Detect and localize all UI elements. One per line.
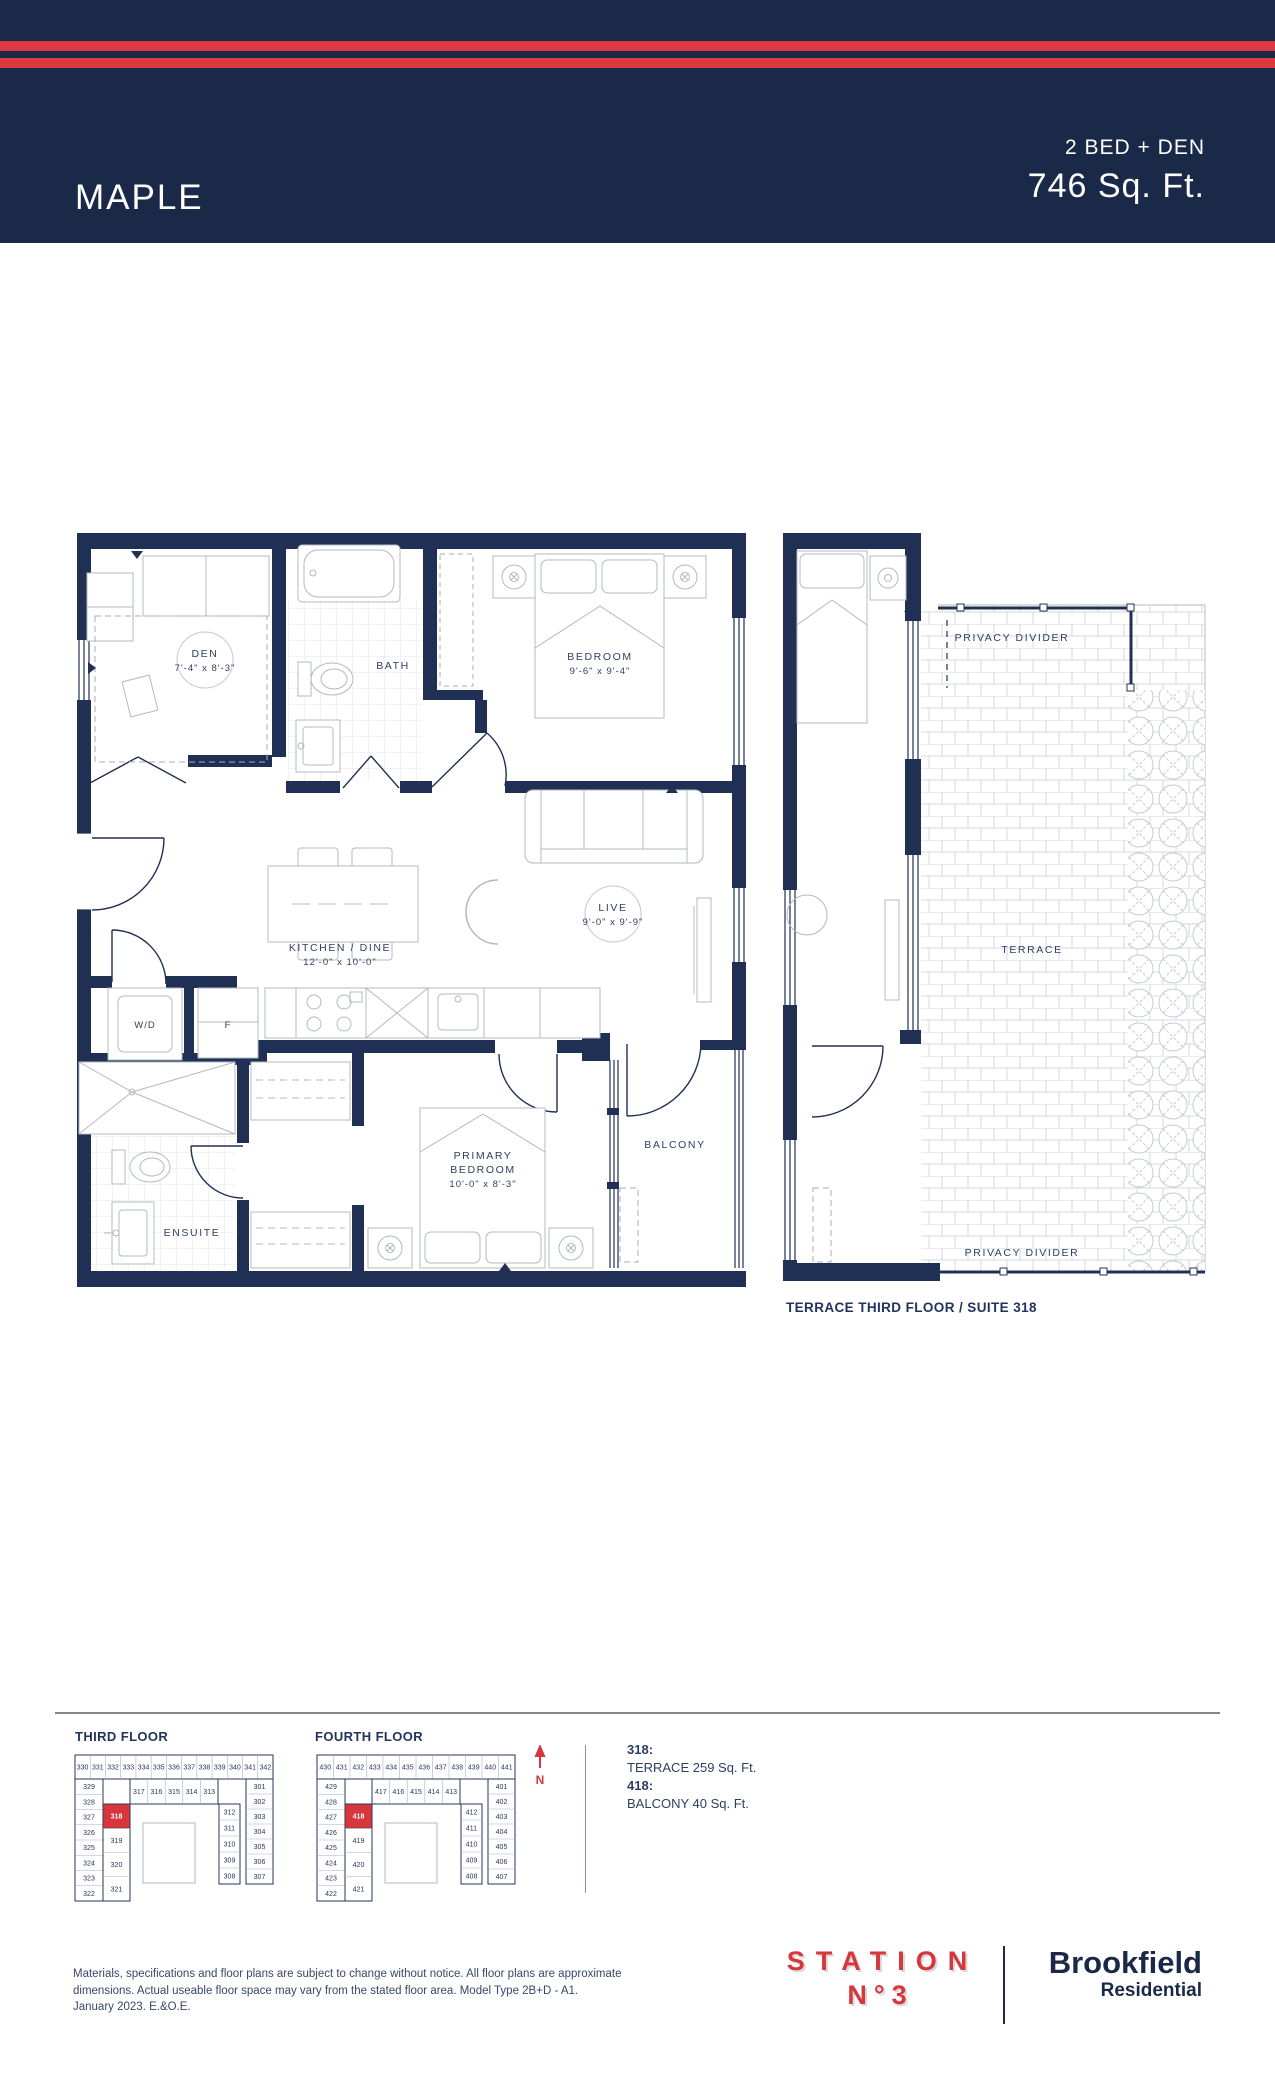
- terrace-plan-svg: PRIVACY DIVIDER TERRACE PRIVACY DIVIDER: [780, 530, 1210, 1290]
- keyplan-unit-label: 325: [83, 1845, 95, 1852]
- plan-type: 2 BED + DEN: [1028, 136, 1205, 160]
- keyplan-unit-label: 321: [111, 1886, 123, 1893]
- keyplan-unit-label: 326: [83, 1830, 95, 1837]
- keyplan-unit-label: 335: [153, 1764, 165, 1771]
- brookfield-logo: Brookfield Residential: [1020, 1947, 1202, 2002]
- terrace-label: TERRACE: [1001, 944, 1062, 956]
- keyplan-unit-label: 430: [319, 1764, 331, 1771]
- primary-dims: 10'-0" x 8'-3": [449, 1179, 516, 1190]
- keyplan-unit-label: 416: [393, 1789, 405, 1796]
- den-dims: 7'-4" x 8'-3": [175, 663, 236, 674]
- keyplan-unit-label: 315: [168, 1789, 180, 1796]
- keyplan-unit-label: 310: [224, 1841, 236, 1848]
- keyplan-unit-label: 441: [501, 1764, 513, 1771]
- keyplan-unit-label: 421: [353, 1886, 365, 1893]
- header-stripe-bottom: [0, 58, 1275, 68]
- plan-summary: 2 BED + DEN 746 Sq. Ft.: [1028, 136, 1205, 206]
- keyplan-unit-label: 404: [496, 1829, 508, 1836]
- keyplan-unit-label: 332: [107, 1764, 119, 1771]
- keyplan-unit-label: 318: [111, 1814, 123, 1821]
- disclaimer-line-3: January 2023. E.&O.E.: [73, 1999, 673, 2016]
- disclaimer-line-1: Materials, specifications and floor plan…: [73, 1966, 673, 1983]
- keyplan-unit-label: 314: [186, 1789, 198, 1796]
- keyplans-svg: N 33033133233333433533633733833934034134…: [55, 1745, 615, 1915]
- legend-item-418-value: BALCONY 40 Sq. Ft.: [627, 1795, 887, 1813]
- keyplan-unit-label: 417: [375, 1789, 387, 1796]
- keyplan-unit-label: 336: [168, 1764, 180, 1771]
- keyplan-unit-label: 312: [224, 1809, 236, 1816]
- keyplan-unit-label: 429: [325, 1784, 337, 1791]
- keyplan-unit-label: 413: [445, 1789, 457, 1796]
- keyplan-unit-label: 428: [325, 1799, 337, 1806]
- keyplan-courtyard: [143, 1823, 195, 1883]
- third-floor-title: THIRD FLOOR: [75, 1729, 168, 1744]
- rail-posts: [607, 1108, 619, 1189]
- live-dims: 9'-0" x 9'-9": [583, 917, 644, 928]
- floorplan-page: MAPLE 2 BED + DEN 746 Sq. Ft.: [0, 0, 1275, 2100]
- terrace-furniture: [787, 551, 906, 1262]
- balcony-label: BALCONY: [644, 1139, 705, 1151]
- keyplan-unit-label: 406: [496, 1859, 508, 1866]
- keyplan-unit-label: 327: [83, 1815, 95, 1822]
- keyplan-unit-label: 419: [353, 1838, 365, 1845]
- plan-area: 746 Sq. Ft.: [1028, 167, 1205, 206]
- ensuite-label: ENSUITE: [164, 1227, 221, 1239]
- keyplan-unit-label: 410: [466, 1841, 478, 1848]
- keyplan-unit-label: 341: [244, 1764, 256, 1771]
- keyplan-unit-label: 439: [468, 1764, 480, 1771]
- fourth-floor-title: FOURTH FLOOR: [315, 1729, 423, 1744]
- header-stripe-top: [0, 41, 1275, 51]
- north-label: N: [536, 1773, 545, 1787]
- keyplan-unit-label: 307: [254, 1874, 266, 1881]
- keyplan-unit-label: 414: [428, 1789, 440, 1796]
- keyplan-unit-label: 422: [325, 1891, 337, 1898]
- den-label: DEN: [192, 648, 219, 660]
- keyplan-unit-label: 408: [466, 1873, 478, 1880]
- station-logo-line2: N°3: [752, 1980, 1002, 2011]
- keyplan-unit-label: 415: [410, 1789, 422, 1796]
- bath-label: BATH: [376, 660, 410, 672]
- keyplan-unit-label: 401: [496, 1784, 508, 1791]
- keyplan-unit-label: 301: [254, 1784, 266, 1791]
- keyplan-unit-label: 324: [83, 1860, 95, 1867]
- keyplan-unit-label: 418: [353, 1814, 365, 1821]
- keyplan-unit-label: 432: [352, 1764, 364, 1771]
- primary-label-2: BEDROOM: [450, 1164, 515, 1176]
- live-label: LIVE: [598, 902, 627, 914]
- keyplan-unit-label: 423: [325, 1876, 337, 1883]
- terrace-caption: TERRACE THIRD FLOOR / SUITE 318: [786, 1300, 1216, 1315]
- keyplan-unit-label: 437: [435, 1764, 447, 1771]
- plan-title: MAPLE: [75, 178, 204, 218]
- brookfield-logo-line1: Brookfield: [1020, 1947, 1202, 1978]
- legend-item-318-value: TERRACE 259 Sq. Ft.: [627, 1759, 887, 1777]
- keyplan-unit-label: 409: [466, 1857, 478, 1864]
- terrace-door: [812, 1046, 883, 1117]
- keyplan-unit-label: 317: [133, 1789, 145, 1796]
- keyplan-unit-label: 431: [336, 1764, 348, 1771]
- keyplan-unit-label: 331: [92, 1764, 104, 1771]
- logo-divider: [1003, 1946, 1005, 2024]
- keyplan-unit-label: 403: [496, 1814, 508, 1821]
- keyplan-unit-label: 303: [254, 1814, 266, 1821]
- legend-divider: [585, 1745, 586, 1893]
- keyplan-unit-label: 306: [254, 1859, 266, 1866]
- keyplan-unit-label: 436: [418, 1764, 430, 1771]
- outdoor-area-legend: 318: TERRACE 259 Sq. Ft. 418: BALCONY 40…: [627, 1741, 887, 1813]
- keyplan-unit-label: 438: [451, 1764, 463, 1771]
- legend-item-418-label: 418:: [627, 1778, 653, 1793]
- keyplan-unit-label: 412: [466, 1809, 478, 1816]
- keyplan-unit-label: 440: [484, 1764, 496, 1771]
- keyplan-unit-label: 311: [224, 1825, 235, 1832]
- keyplan-unit-label: 420: [353, 1862, 365, 1869]
- keyplan-unit-label: 342: [260, 1764, 272, 1771]
- keyplan-unit-label: 402: [496, 1799, 508, 1806]
- keyplan-unit-label: 426: [325, 1830, 337, 1837]
- keyplan-unit-label: 405: [496, 1844, 508, 1851]
- keyplan-unit-label: 411: [466, 1825, 477, 1832]
- keyplan-unit-label: 313: [203, 1789, 215, 1796]
- keyplan-unit-label: 424: [325, 1860, 337, 1867]
- keyplan-unit-label: 320: [111, 1862, 123, 1869]
- keyplan-unit-label: 330: [77, 1764, 89, 1771]
- keyplan-unit-label: 337: [183, 1764, 195, 1771]
- privacy-divider-top-label: PRIVACY DIVIDER: [955, 632, 1070, 644]
- keyplan-unit-label: 427: [325, 1815, 337, 1822]
- keyplan-unit-label: 334: [138, 1764, 150, 1771]
- terrace-paving: [921, 605, 1205, 1272]
- kitchen-dims: 12'-0" x 10'-0": [303, 957, 376, 968]
- keyplan-unit-label: 316: [151, 1789, 163, 1796]
- main-floorplan-svg: DEN 7'-4" x 8'-3" BATH BEDROOM 9'-6" x 9…: [55, 530, 765, 1295]
- den-label-circle: [177, 632, 233, 688]
- primary-label-1: PRIMARY: [454, 1150, 513, 1162]
- keyplan-unit-label: 323: [83, 1876, 95, 1883]
- keyplan-unit-label: 305: [254, 1844, 266, 1851]
- fridge-label: F: [225, 1020, 232, 1031]
- keyplan-courtyard: [385, 1823, 437, 1883]
- keyplan-unit-label: 425: [325, 1845, 337, 1852]
- bedroom-dims: 9'-6" x 9'-4": [570, 666, 631, 677]
- disclaimer-text: Materials, specifications and floor plan…: [73, 1966, 673, 2016]
- station-no3-logo: STATION N°3: [752, 1946, 1002, 2011]
- north-arrow: N: [535, 1745, 546, 1787]
- live-label-circle: [585, 886, 641, 942]
- keyplan-unit-label: 435: [402, 1764, 414, 1771]
- keyplan-unit-label: 319: [111, 1838, 123, 1845]
- keyplan-unit-label: 309: [224, 1857, 236, 1864]
- keyplan-unit-label: 329: [83, 1784, 95, 1791]
- privacy-divider-bottom-label: PRIVACY DIVIDER: [965, 1247, 1080, 1259]
- wd-label: W/D: [134, 1020, 155, 1031]
- keyplan-unit-label: 338: [199, 1764, 211, 1771]
- keyplan-unit-label: 434: [385, 1764, 397, 1771]
- keyplan-unit-label: 304: [254, 1829, 266, 1836]
- section-divider-line: [55, 1712, 1220, 1714]
- disclaimer-line-2: dimensions. Actual useable floor space m…: [73, 1983, 673, 2000]
- brookfield-logo-line2: Residential: [1020, 1980, 1202, 2002]
- shrub-strip: [1128, 690, 1205, 1272]
- keyplan-unit-label: 407: [496, 1874, 508, 1881]
- station-logo-line1: STATION: [752, 1946, 1002, 1977]
- keyplan-unit-label: 308: [224, 1873, 236, 1880]
- keyplan-unit-label: 433: [369, 1764, 381, 1771]
- kitchen-label: KITCHEN / DINE: [289, 942, 391, 954]
- bedroom-label: BEDROOM: [567, 651, 632, 663]
- keyplan-unit-label: 339: [214, 1764, 226, 1771]
- legend-item-318-label: 318:: [627, 1742, 653, 1757]
- keyplan-unit-label: 328: [83, 1799, 95, 1806]
- keyplan-unit-label: 302: [254, 1799, 266, 1806]
- keyplan-unit-label: 340: [229, 1764, 241, 1771]
- keyplan-unit-label: 322: [83, 1891, 95, 1898]
- keyplan-unit-label: 333: [122, 1764, 134, 1771]
